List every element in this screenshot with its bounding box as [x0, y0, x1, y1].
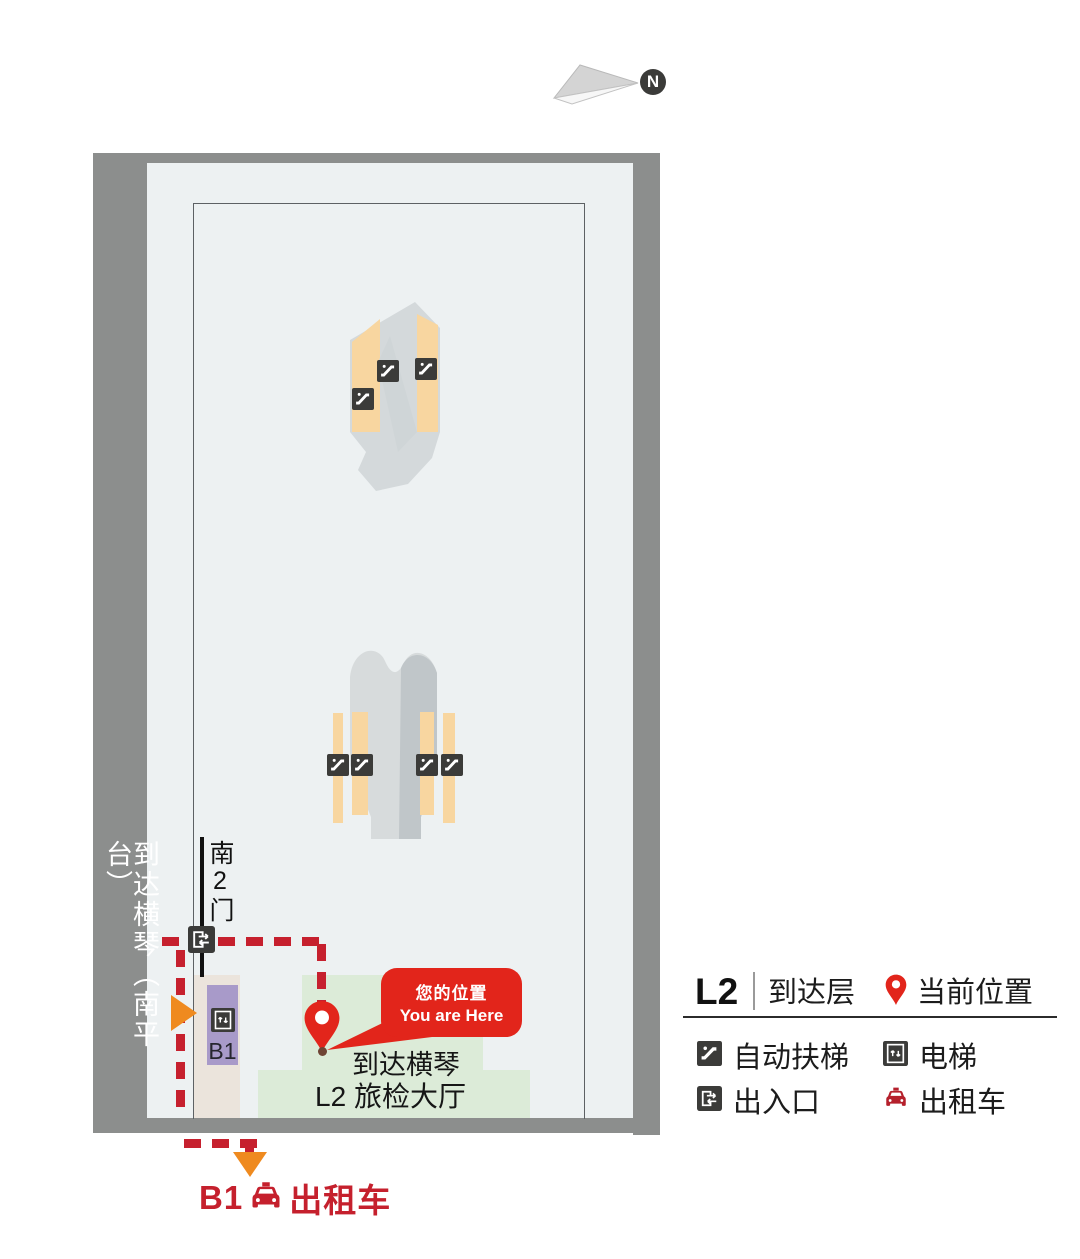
elevator-floor-label: B1	[205, 1040, 240, 1063]
map-frame-top	[93, 153, 660, 163]
route-dashed-from-pin	[317, 944, 326, 1004]
route-arrow-to-elevator-icon	[171, 995, 197, 1031]
legend-current-location: 当前位置	[917, 979, 1033, 1008]
legend-item-label: 出租车	[919, 1089, 1006, 1118]
legend-item-label: 出入口	[733, 1089, 820, 1118]
escalator-icon	[327, 754, 349, 776]
gate-wall-line	[200, 837, 204, 977]
floor-map-page: N 到达横琴（南平台）	[0, 0, 1080, 1259]
escalator-cluster-south	[325, 635, 465, 845]
route-dashed-down-left	[176, 950, 185, 1118]
legend-rule	[683, 1016, 1057, 1018]
legend-floor-name: 到达层	[768, 979, 855, 1008]
escalator-icon	[351, 754, 373, 776]
taxi-callout: B1 出租车	[199, 1174, 391, 1222]
escalator-icon	[352, 388, 374, 410]
elevator-icon	[211, 1008, 235, 1032]
escalator-icon	[377, 360, 399, 382]
taxi-icon	[248, 1181, 284, 1215]
escalator-cluster-north	[338, 292, 444, 494]
taxi-callout-floor: B1	[199, 1179, 243, 1217]
escalator-icon	[441, 754, 463, 776]
current-location-pin-icon	[884, 974, 908, 1006]
legend-item-label: 自动扶梯	[733, 1044, 849, 1073]
legend: L2 到达层 当前位置 自动扶梯 电梯 出入口	[683, 965, 1063, 1125]
legend-item-label: 电梯	[919, 1044, 977, 1073]
legend-divider	[753, 972, 755, 1010]
legend-floor: L2	[695, 973, 738, 1010]
escalator-icon	[697, 1041, 722, 1066]
platform-label: 到达横琴（南平台）	[103, 840, 157, 1080]
you-are-here-balloon: 您的位置 You are Here	[381, 968, 522, 1037]
taxi-callout-label: 出租车	[289, 1174, 391, 1222]
you-are-here-text-en: You are Here	[381, 1006, 522, 1026]
map-frame-bottom	[93, 1118, 660, 1133]
you-are-here-text-cn: 您的位置	[381, 979, 522, 1004]
entrance-exit-icon	[188, 926, 215, 953]
taxi-icon	[883, 1087, 909, 1111]
escalator-icon	[415, 358, 437, 380]
entrance-exit-icon	[697, 1086, 722, 1111]
hall-label-line2: L2 旅检大厅	[303, 1075, 478, 1115]
map-frame-right	[633, 153, 660, 1135]
escalator-icon	[416, 754, 438, 776]
elevator-icon	[883, 1041, 908, 1066]
